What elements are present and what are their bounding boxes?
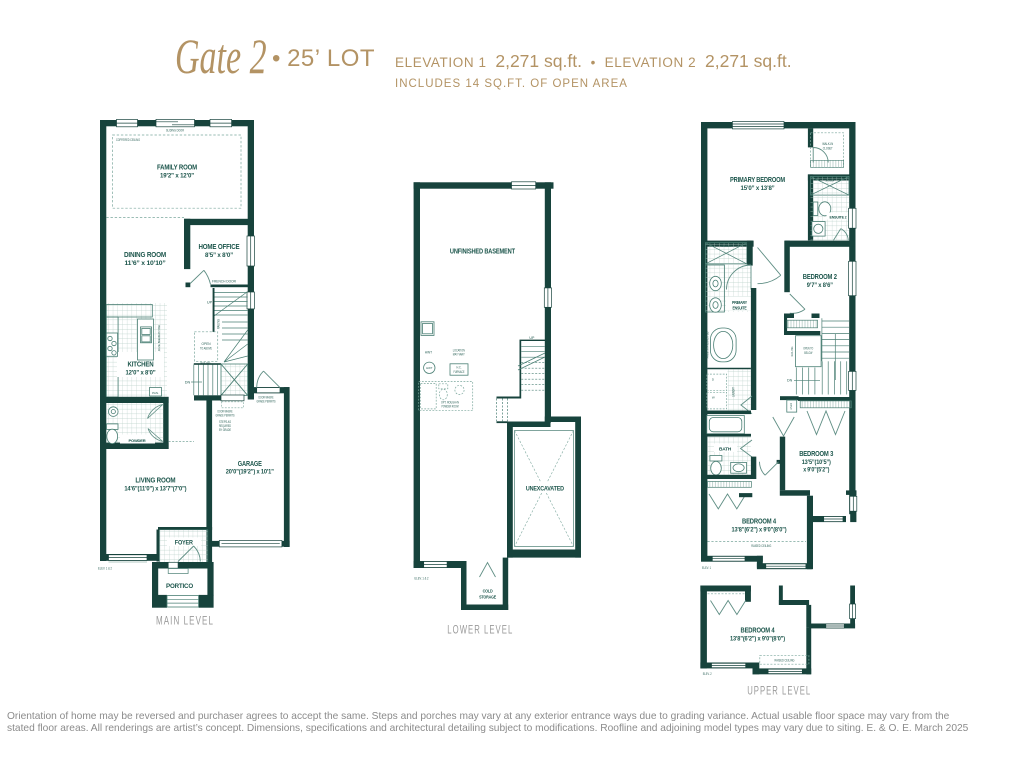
svg-text:KITCHEN: KITCHEN: [128, 362, 154, 369]
svg-text:13’8”(6’2”) x 9’0”(8’0”): 13’8”(6’2”) x 9’0”(8’0”): [732, 528, 787, 534]
svg-text:MAIN LEVEL: MAIN LEVEL: [156, 614, 214, 628]
svg-text:x 9’0”(5’2”): x 9’0”(5’2”): [803, 468, 829, 474]
svg-text:FREE STANDING TUB: FREE STANDING TUB: [705, 331, 709, 358]
svg-text:BATH: BATH: [719, 447, 731, 452]
svg-text:11’6” x 10’10”: 11’6” x 10’10”: [125, 261, 166, 267]
svg-text:LAUNDRY: LAUNDRY: [732, 386, 736, 397]
svg-text:DN: DN: [185, 381, 191, 385]
svg-text:ENSUITE 2: ENSUITE 2: [830, 215, 847, 219]
svg-text:LOWER LEVEL: LOWER LEVEL: [447, 623, 513, 637]
svg-text:LIVING ROOM: LIVING ROOM: [135, 478, 175, 485]
svg-text:ELEV. 2: ELEV. 2: [703, 672, 712, 676]
svg-text:LINEN: LINEN: [789, 403, 793, 410]
svg-text:GRADE PERMITS: GRADE PERMITS: [257, 400, 276, 404]
svg-text:SHOWER: SHOWER: [722, 244, 731, 248]
svg-text:RAILING: RAILING: [790, 346, 794, 357]
svg-text:RAISED CEILING: RAISED CEILING: [751, 544, 771, 548]
svg-text:RAILING: RAILING: [217, 319, 221, 329]
svg-text:SLIDING DOOR: SLIDING DOOR: [166, 129, 184, 133]
svg-text:WALK-IN: WALK-IN: [822, 142, 833, 146]
svg-text:FURNACE: FURNACE: [454, 370, 465, 374]
svg-text:POWDER: POWDER: [129, 439, 146, 443]
svg-text:D: D: [712, 378, 715, 382]
svg-text:DINING ROOM: DINING ROOM: [124, 252, 166, 259]
svg-text:W: W: [712, 396, 715, 400]
svg-text:MAY VARY: MAY VARY: [453, 353, 466, 357]
svg-text:BY GRADE: BY GRADE: [219, 428, 231, 432]
svg-text:OPEN: OPEN: [202, 342, 212, 346]
svg-text:DN: DN: [787, 379, 793, 383]
svg-text:BEDROOM 4: BEDROOM 4: [742, 519, 776, 526]
svg-text:COLD: COLD: [483, 589, 494, 594]
svg-text:COFFERED CEILING: COFFERED CEILING: [116, 138, 140, 142]
svg-text:GARAGE: GARAGE: [238, 461, 262, 468]
svg-text:20’0”(19’2”) x 10’1”: 20’0”(19’2”) x 10’1”: [226, 470, 274, 476]
svg-text:12’0” x 8’0”: 12’0” x 8’0”: [126, 371, 156, 377]
svg-text:STORAGE: STORAGE: [479, 595, 496, 600]
svg-text:UPPER LEVEL: UPPER LEVEL: [747, 684, 811, 698]
svg-text:9’7” x 8’6”: 9’7” x 8’6”: [807, 283, 833, 289]
svg-text:PRIMARY: PRIMARY: [732, 300, 747, 305]
svg-text:CLOSET: CLOSET: [823, 147, 833, 151]
svg-text:RAISED CEILING: RAISED CEILING: [775, 659, 795, 663]
svg-text:13’8”(6’2”) x 9’0”(8’0”): 13’8”(6’2”) x 9’0”(8’0”): [730, 637, 785, 643]
svg-text:HWT: HWT: [425, 351, 432, 355]
svg-text:BELOW: BELOW: [804, 351, 813, 355]
svg-text:14’6”(11’0”) x 13’7”(7’0”): 14’6”(11’0”) x 13’7”(7’0”): [124, 487, 186, 493]
svg-text:13’5”(10’5”): 13’5”(10’5”): [802, 460, 831, 466]
svg-text:BEDROOM 4: BEDROOM 4: [741, 628, 775, 635]
svg-text:UP: UP: [529, 336, 535, 340]
svg-text:SHOWER: SHOWER: [825, 179, 834, 183]
svg-text:8’5” x 8’0”: 8’5” x 8’0”: [205, 253, 233, 259]
svg-text:TO ABOVE: TO ABOVE: [200, 346, 213, 350]
svg-text:H.C.: H.C.: [457, 366, 462, 370]
svg-text:BEDROOM 2: BEDROOM 2: [803, 274, 837, 281]
svg-text:UNEXCAVATED: UNEXCAVATED: [526, 487, 565, 493]
svg-text:ELEV. 1 & 2: ELEV. 1 & 2: [98, 567, 112, 571]
svg-text:UNFINISHED BASEMENT: UNFINISHED BASEMENT: [450, 249, 516, 256]
svg-text:ENSUITE: ENSUITE: [733, 306, 747, 311]
svg-text:BEDROOM 3: BEDROOM 3: [799, 451, 833, 458]
svg-text:15’0” x 13’8”: 15’0” x 13’8”: [741, 186, 775, 192]
svg-text:HOME OFFICE: HOME OFFICE: [199, 244, 240, 251]
svg-text:ELEV. 1: ELEV. 1: [702, 566, 711, 570]
svg-text:FLUSH BREAKFAST BAR: FLUSH BREAKFAST BAR: [157, 324, 161, 351]
svg-text:PRIMARY BEDROOM: PRIMARY BEDROOM: [730, 177, 785, 184]
svg-text:GRADE PERMITS: GRADE PERMITS: [216, 414, 235, 418]
svg-text:ELEV. 1 & 2: ELEV. 1 & 2: [415, 577, 429, 581]
svg-text:FRENCH DOOR: FRENCH DOOR: [212, 280, 236, 284]
svg-text:OPEN TO: OPEN TO: [803, 347, 813, 351]
svg-text:19’2” x 12’0”: 19’2” x 12’0”: [160, 174, 194, 180]
svg-text:HWT: HWT: [426, 366, 433, 370]
svg-text:PORTICO: PORTICO: [166, 583, 193, 590]
svg-text:FAMILY ROOM: FAMILY ROOM: [157, 165, 197, 172]
svg-text:UP: UP: [207, 301, 213, 305]
svg-text:POWDER ROOM: POWDER ROOM: [442, 405, 459, 409]
svg-text:FOYER: FOYER: [175, 541, 194, 547]
svg-text:PAN.: PAN.: [152, 391, 159, 395]
